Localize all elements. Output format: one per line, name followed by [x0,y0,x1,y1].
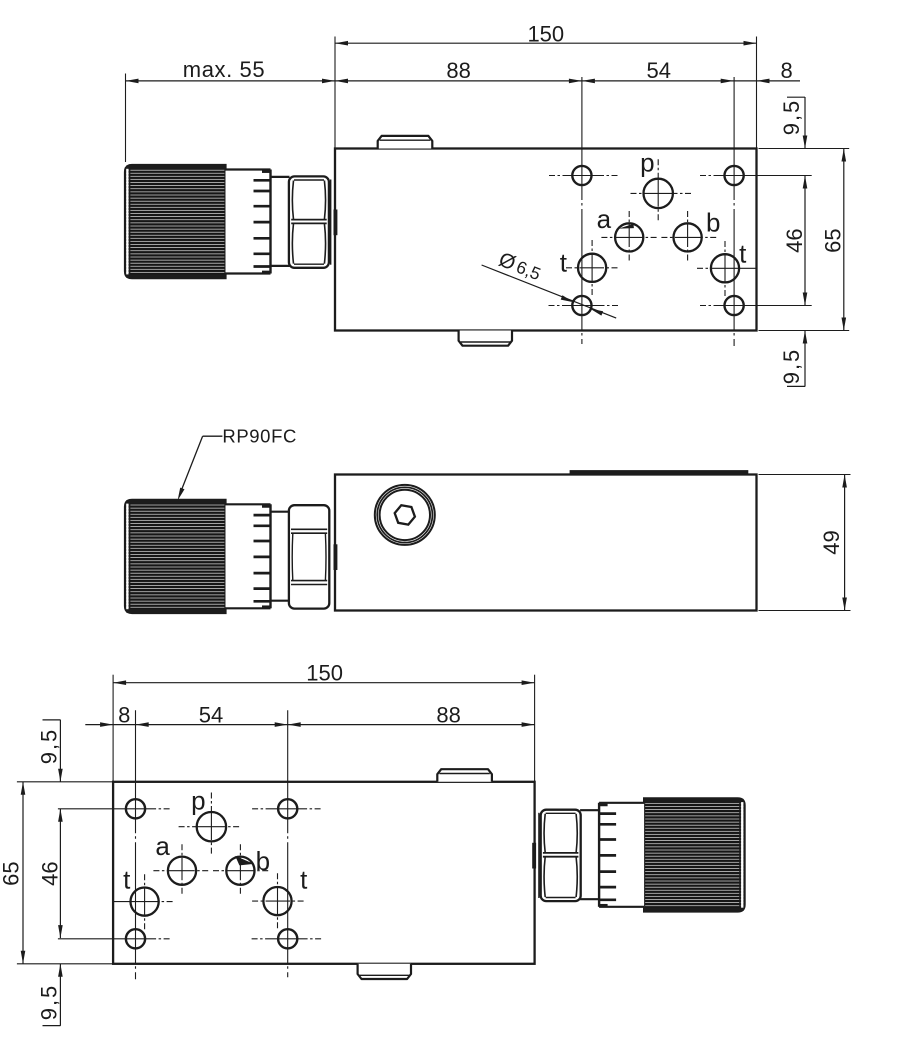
svg-text:88: 88 [446,58,470,83]
svg-text:t: t [300,864,308,894]
svg-text:8: 8 [780,58,792,83]
svg-text:b: b [256,846,270,876]
svg-text:49: 49 [819,530,844,554]
svg-text:8: 8 [118,702,130,727]
svg-text:65: 65 [821,228,846,252]
svg-text:150: 150 [527,21,564,46]
svg-text:46: 46 [38,861,63,885]
svg-text:9,5: 9,5 [37,728,62,765]
svg-text:t: t [560,248,568,278]
svg-text:150: 150 [306,661,343,686]
svg-text:65: 65 [0,861,24,885]
svg-text:b: b [706,208,720,238]
svg-text:a: a [597,204,612,234]
svg-text:max. 55: max. 55 [183,57,265,82]
svg-text:88: 88 [436,702,460,727]
svg-text:t: t [123,864,131,894]
svg-text:p: p [191,786,205,816]
svg-text:p: p [640,148,654,178]
svg-text:46: 46 [782,228,807,252]
svg-text:9,5: 9,5 [779,99,804,136]
svg-text:t: t [739,239,747,269]
svg-text:9,5: 9,5 [37,984,62,1021]
svg-text:a: a [155,831,170,861]
svg-text:9,5: 9,5 [779,348,804,385]
svg-text:RP90FC: RP90FC [222,426,297,447]
svg-text:54: 54 [199,702,223,727]
svg-text:54: 54 [646,58,670,83]
